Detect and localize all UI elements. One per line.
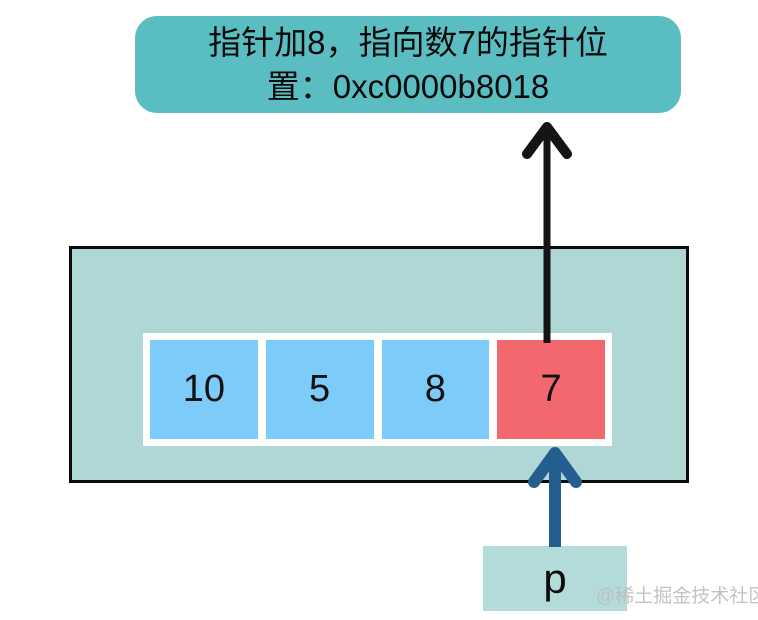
- banner-text-line-1: 指针加8，指向数7的指针位: [208, 21, 608, 65]
- diagram-canvas: 指针加8，指向数7的指针位 置：0xc0000b8018 10 5 8 7 p …: [0, 0, 758, 620]
- explanation-banner: 指针加8，指向数7的指针位 置：0xc0000b8018: [135, 16, 681, 113]
- array-cell-5: 5: [266, 340, 374, 439]
- array-cell-7-highlighted: 7: [497, 340, 605, 439]
- array-cell-8: 8: [382, 340, 490, 439]
- watermark-text: @稀土掘金技术社区: [596, 581, 758, 608]
- banner-text-line-2: 置：0xc0000b8018: [267, 65, 550, 109]
- array-cell-10: 10: [150, 340, 258, 439]
- array-container: 10 5 8 7: [143, 333, 612, 446]
